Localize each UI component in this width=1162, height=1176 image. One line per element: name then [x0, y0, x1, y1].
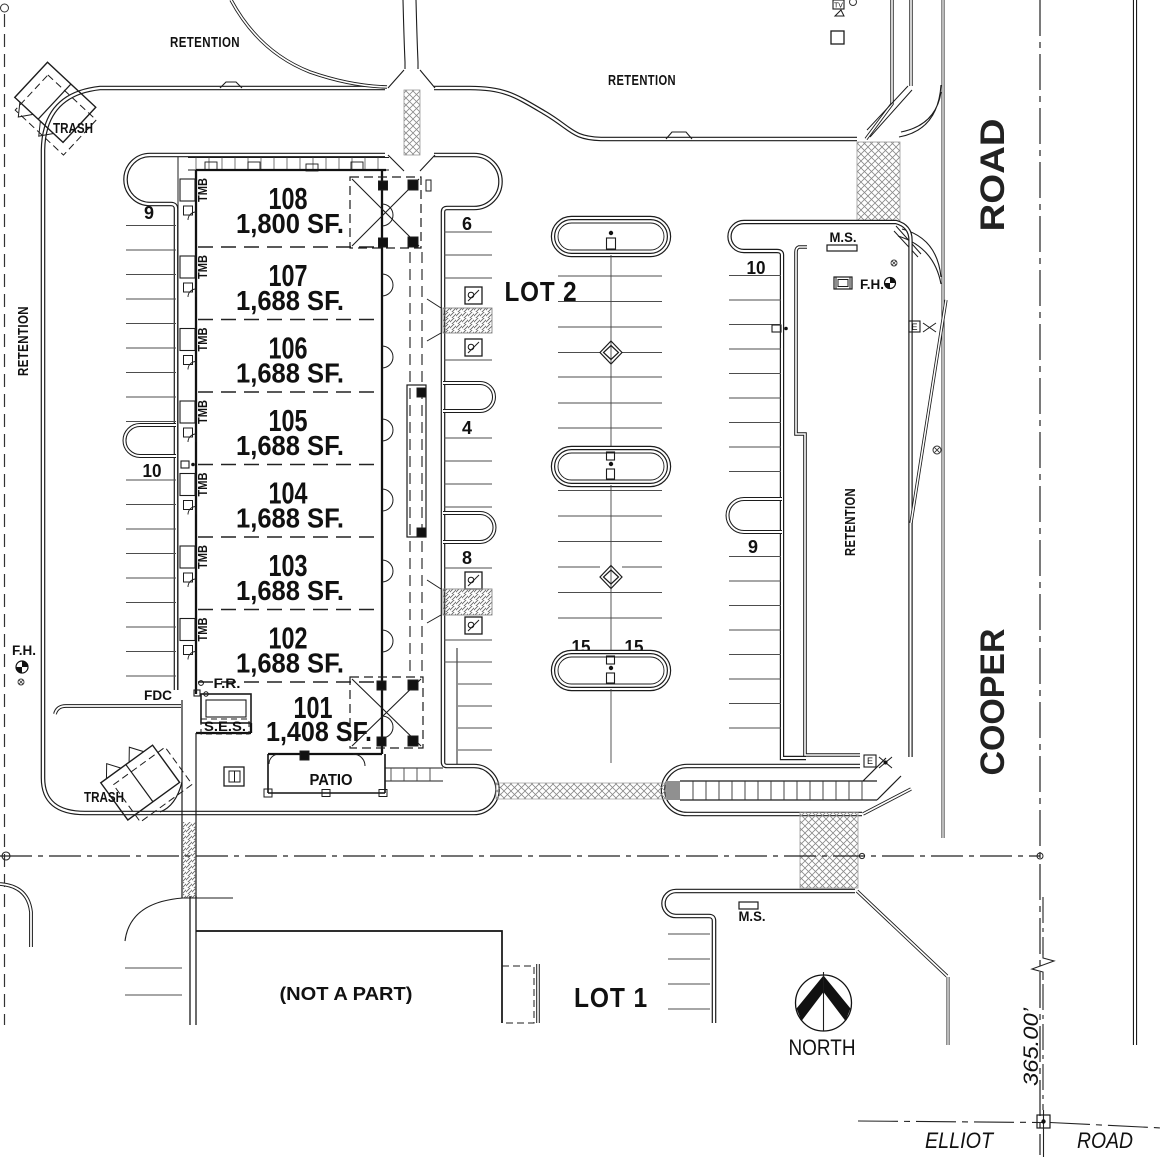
svg-text:4: 4	[462, 418, 472, 438]
svg-text:M.S.: M.S.	[739, 909, 766, 924]
svg-text:10: 10	[143, 461, 162, 481]
svg-text:RETENTION: RETENTION	[170, 35, 240, 51]
svg-text:TMB: TMB	[195, 255, 210, 279]
svg-text:RETENTION: RETENTION	[16, 306, 32, 376]
svg-text:6: 6	[462, 214, 472, 234]
svg-text:1,688 SF.: 1,688 SF.	[236, 648, 344, 679]
svg-text:M.S.: M.S.	[830, 230, 857, 245]
svg-text:F.H.: F.H.	[12, 643, 36, 658]
svg-text:E: E	[867, 756, 873, 766]
svg-text:TMB: TMB	[195, 400, 210, 424]
svg-text:FDC: FDC	[144, 688, 172, 703]
svg-text:10: 10	[747, 258, 766, 278]
svg-text:1,688 SF.: 1,688 SF.	[236, 285, 344, 316]
svg-text:ROAD: ROAD	[974, 119, 1012, 232]
svg-text:8: 8	[462, 548, 472, 568]
svg-text:TRASH: TRASH	[84, 790, 124, 806]
svg-text:COOPER: COOPER	[974, 629, 1012, 776]
svg-text:E: E	[911, 322, 917, 332]
svg-text:(NOT A PART): (NOT A PART)	[280, 983, 413, 1004]
svg-text:1,688 SF.: 1,688 SF.	[236, 575, 344, 606]
svg-text:PATIO: PATIO	[310, 772, 353, 789]
svg-text:RETENTION: RETENTION	[843, 488, 859, 556]
svg-text:F.R.: F.R.	[214, 676, 241, 691]
svg-text:TMB: TMB	[195, 178, 210, 202]
svg-text:S.E.S.: S.E.S.	[204, 719, 246, 734]
svg-text:9: 9	[144, 203, 154, 223]
svg-text:9: 9	[748, 537, 758, 557]
svg-text:TRASH: TRASH	[53, 121, 93, 137]
svg-text:LOT 2: LOT 2	[505, 276, 578, 307]
svg-text:365.00’: 365.00’	[1020, 1008, 1043, 1086]
svg-text:NORTH: NORTH	[789, 1035, 856, 1060]
svg-text:1,688 SF.: 1,688 SF.	[236, 358, 344, 389]
svg-text:F.H.: F.H.	[860, 277, 884, 292]
svg-text:TV: TV	[834, 3, 843, 10]
svg-text:LOT 1: LOT 1	[574, 982, 648, 1013]
svg-text:TMB: TMB	[195, 545, 210, 569]
svg-text:ROAD: ROAD	[1077, 1128, 1133, 1153]
svg-text:RETENTION: RETENTION	[608, 73, 676, 89]
svg-text:1,688 SF.: 1,688 SF.	[236, 503, 344, 534]
svg-text:TMB: TMB	[195, 328, 210, 352]
svg-text:1,688 SF.: 1,688 SF.	[236, 430, 344, 461]
svg-text:TMB: TMB	[195, 618, 210, 642]
svg-text:ELLIOT: ELLIOT	[925, 1128, 994, 1153]
svg-text:TMB: TMB	[195, 473, 210, 497]
svg-text:1,800 SF.: 1,800 SF.	[236, 208, 344, 239]
